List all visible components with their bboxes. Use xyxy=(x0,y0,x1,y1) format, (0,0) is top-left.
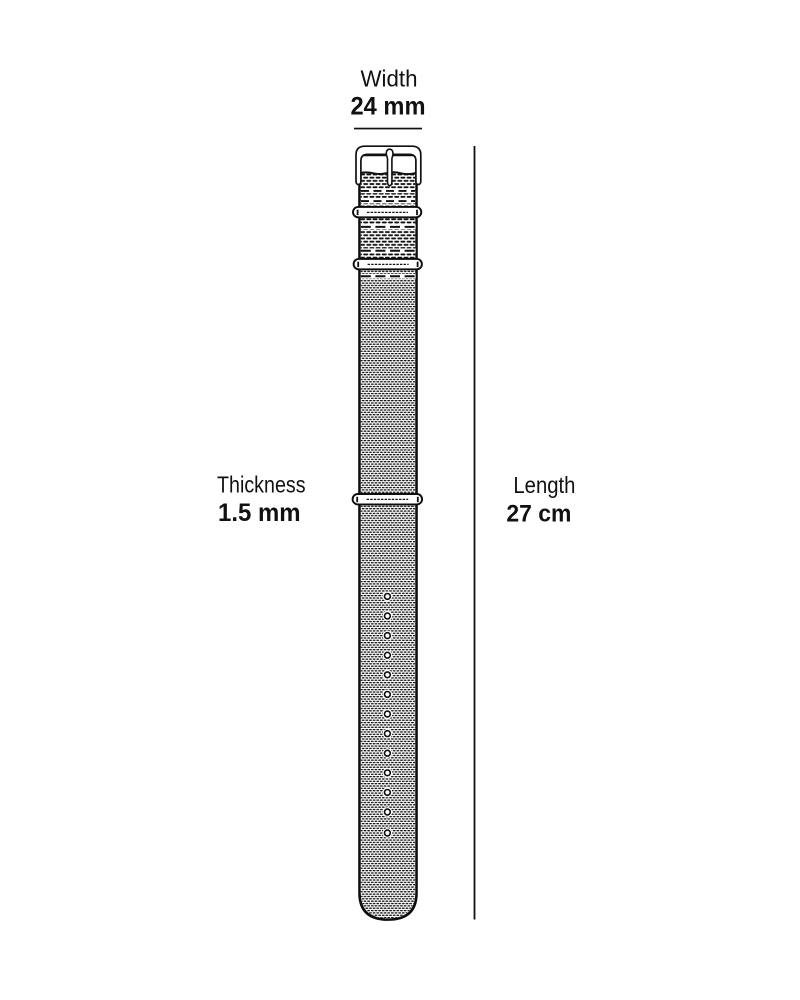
svg-text:24 mm: 24 mm xyxy=(351,93,426,121)
svg-text:Width: Width xyxy=(361,65,418,91)
svg-text:Length: Length xyxy=(513,472,575,498)
svg-text:Thickness: Thickness xyxy=(217,472,306,498)
svg-text:1.5 mm: 1.5 mm xyxy=(218,499,301,527)
svg-text:27 cm: 27 cm xyxy=(506,500,571,527)
